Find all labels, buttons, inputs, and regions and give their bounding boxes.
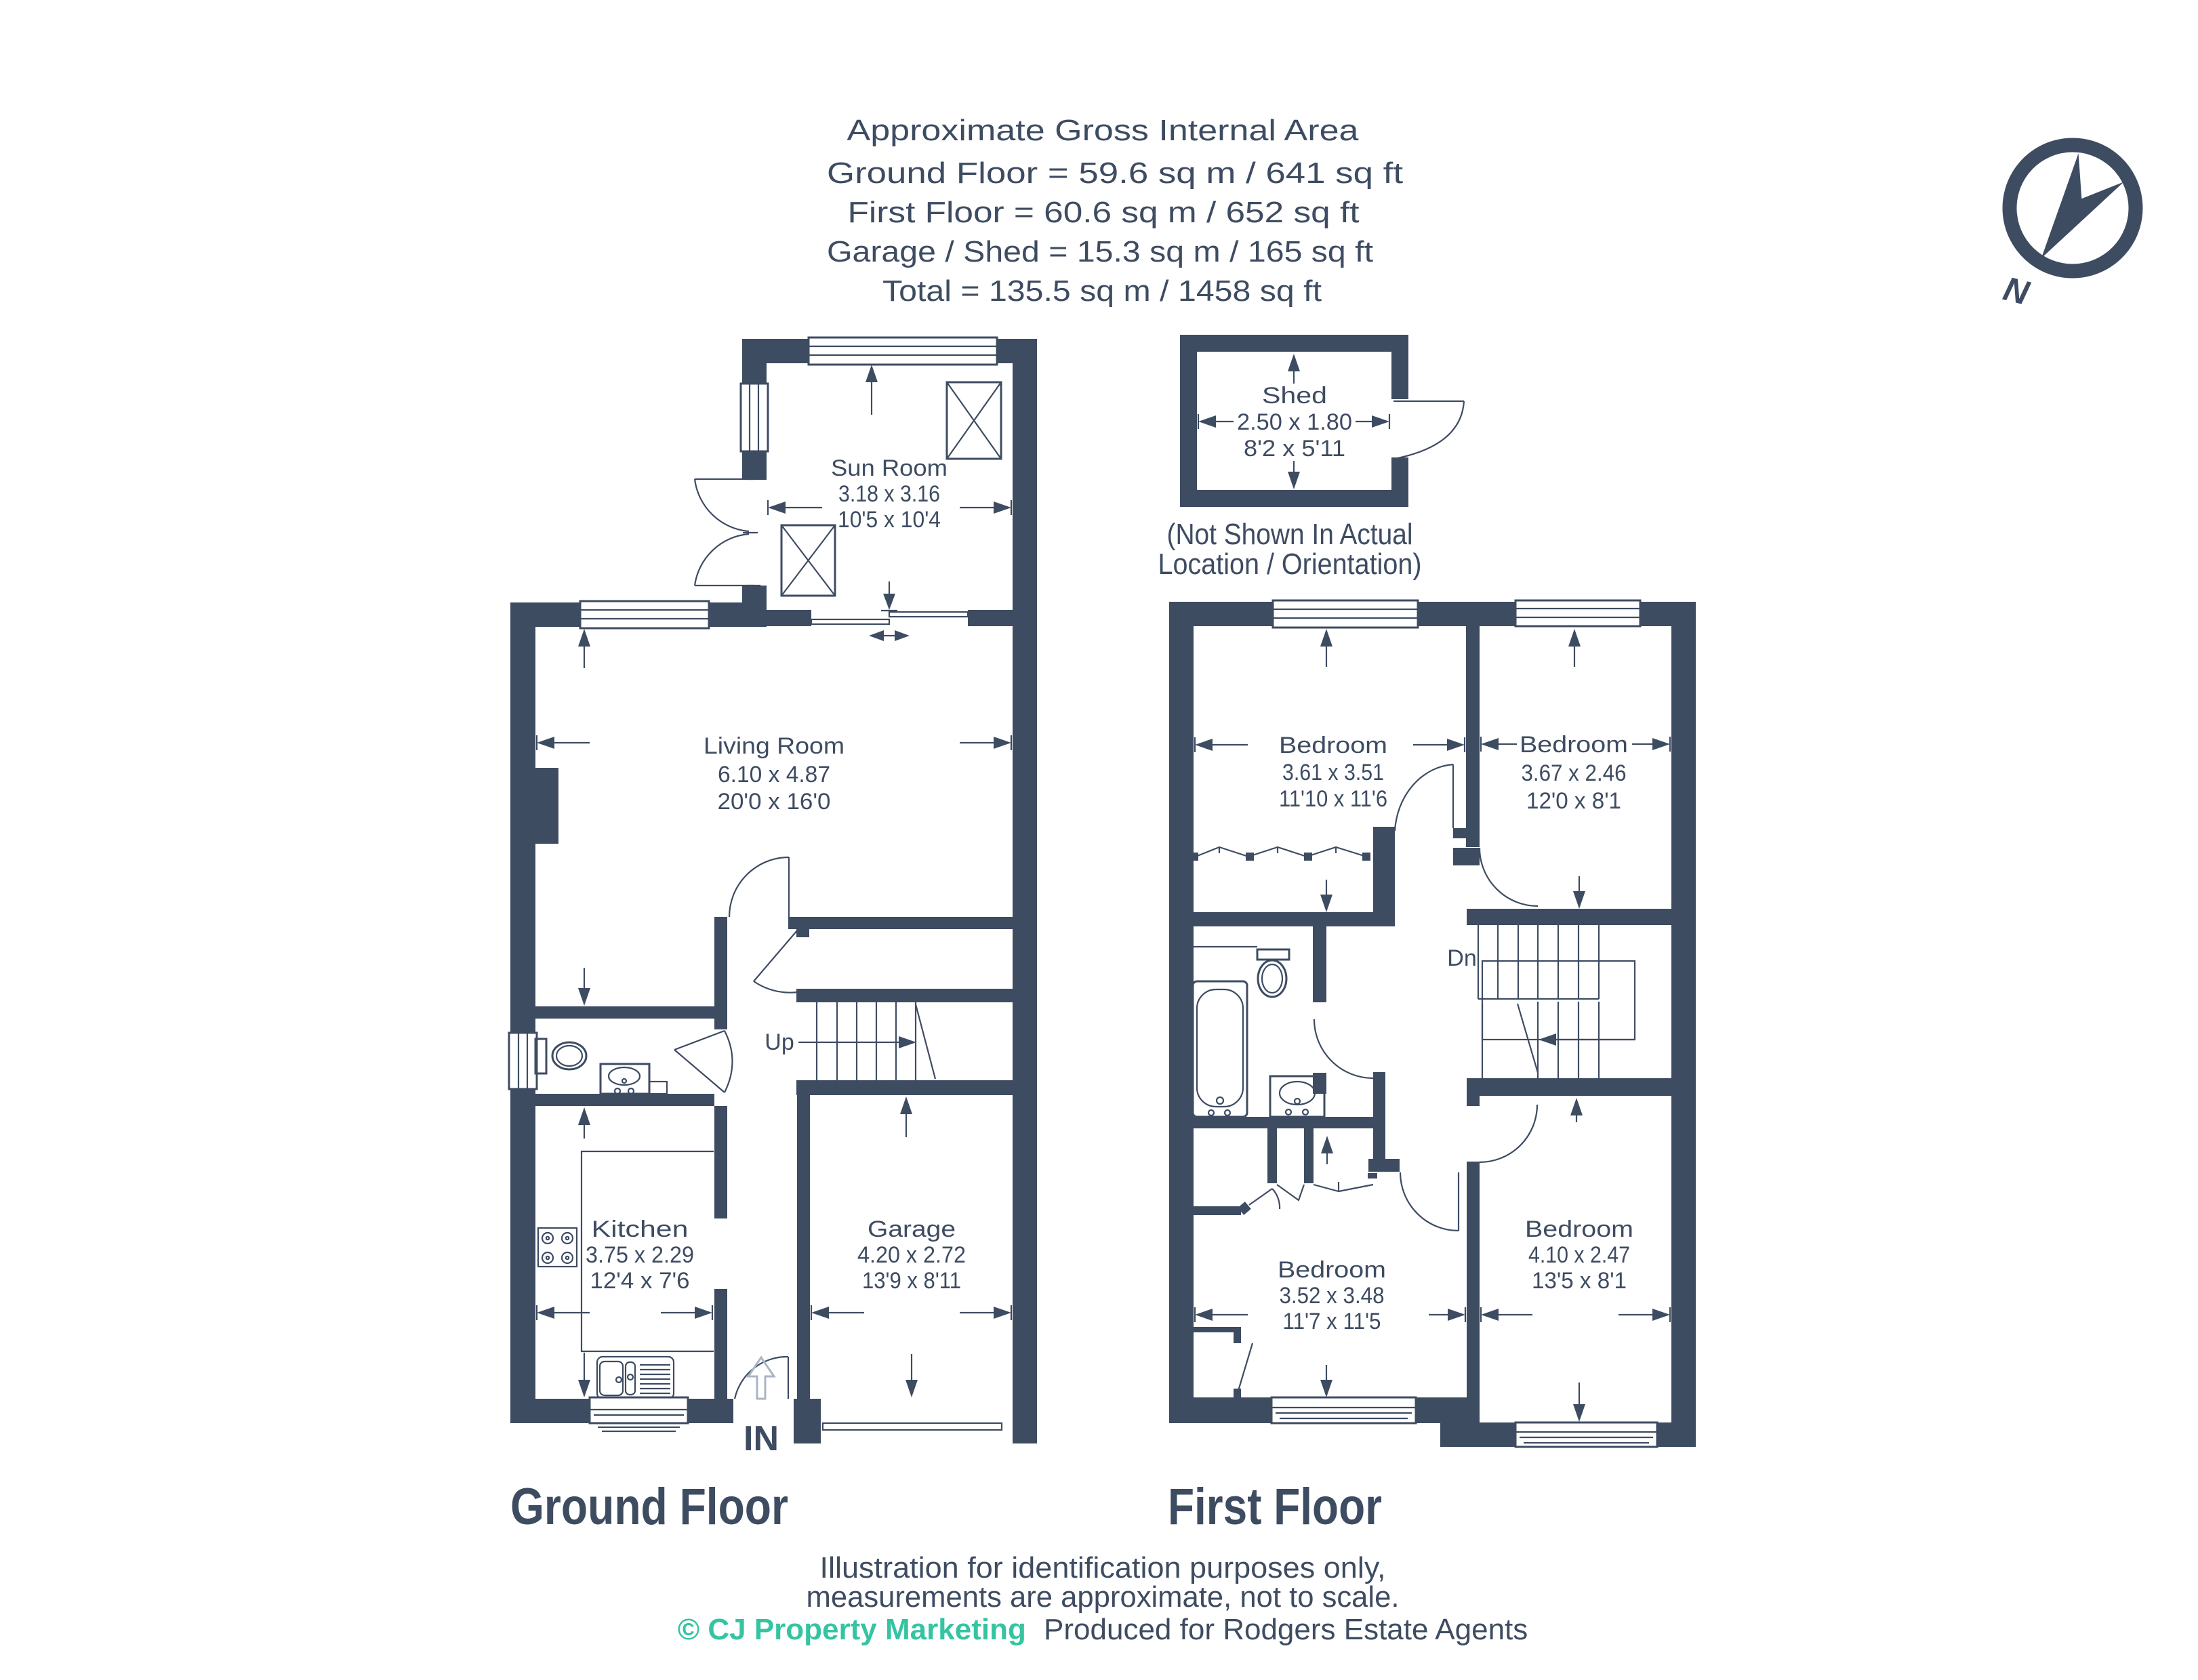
svg-text:3.61 x 3.51: 3.61 x 3.51 bbox=[1282, 760, 1384, 785]
svg-text:Ground Floor = 59.6 sq m / 641: Ground Floor = 59.6 sq m / 641 sq ft bbox=[827, 157, 1403, 190]
svg-text:© CJ Property Marketing Produc: © CJ Property Marketing Produced for Rod… bbox=[678, 1613, 1528, 1646]
svg-text:IN: IN bbox=[744, 1419, 779, 1458]
svg-text:11'10 x 11'6: 11'10 x 11'6 bbox=[1279, 786, 1387, 812]
svg-text:measurements are approximate,: measurements are approximate, not to sca… bbox=[807, 1580, 1400, 1614]
svg-text:Bedroom: Bedroom bbox=[1279, 733, 1387, 758]
svg-text:Sun Room: Sun Room bbox=[831, 455, 948, 481]
svg-text:Kitchen: Kitchen bbox=[592, 1216, 689, 1242]
svg-text:12'4 x 7'6: 12'4 x 7'6 bbox=[590, 1268, 690, 1294]
svg-text:3.67 x 2.46: 3.67 x 2.46 bbox=[1522, 760, 1627, 786]
svg-text:13'9 x 8'11: 13'9 x 8'11 bbox=[862, 1268, 961, 1294]
svg-text:Dn: Dn bbox=[1447, 945, 1476, 971]
svg-text:8'2 x 5'11: 8'2 x 5'11 bbox=[1244, 436, 1345, 462]
svg-text:Location / Orientation): Location / Orientation) bbox=[1158, 548, 1422, 581]
svg-text:(Not Shown In Actual: (Not Shown In Actual bbox=[1167, 518, 1413, 551]
svg-text:12'0 x 8'1: 12'0 x 8'1 bbox=[1526, 788, 1621, 814]
svg-text:Living Room: Living Room bbox=[704, 733, 844, 759]
svg-text:Illustration for identificatio: Illustration for identification purposes… bbox=[820, 1551, 1386, 1584]
svg-text:Bedroom: Bedroom bbox=[1525, 1216, 1633, 1242]
svg-text:Bedroom: Bedroom bbox=[1278, 1257, 1386, 1283]
svg-text:3.52 x 3.48: 3.52 x 3.48 bbox=[1280, 1283, 1385, 1309]
svg-text:Bedroom: Bedroom bbox=[1520, 732, 1628, 758]
svg-text:Shed: Shed bbox=[1262, 383, 1327, 409]
svg-text:Up: Up bbox=[765, 1029, 794, 1055]
svg-text:11'7 x 11'5: 11'7 x 11'5 bbox=[1283, 1309, 1381, 1334]
svg-text:6.10 x 4.87: 6.10 x 4.87 bbox=[718, 762, 830, 787]
svg-text:Approximate Gross Internal Are: Approximate Gross Internal Area bbox=[847, 114, 1360, 147]
svg-text:13'5 x 8'1: 13'5 x 8'1 bbox=[1532, 1268, 1627, 1294]
svg-text:4.10 x 2.47: 4.10 x 2.47 bbox=[1528, 1242, 1630, 1268]
svg-text:First Floor = 60.6 sq m / 652: First Floor = 60.6 sq m / 652 sq ft bbox=[848, 196, 1360, 229]
svg-text:20'0 x 16'0: 20'0 x 16'0 bbox=[718, 789, 831, 815]
svg-text:4.20 x 2.72: 4.20 x 2.72 bbox=[857, 1242, 966, 1268]
svg-text:Total = 135.5 sq m / 1458 sq f: Total = 135.5 sq m / 1458 sq ft bbox=[882, 274, 1322, 308]
svg-text:3.75 x 2.29: 3.75 x 2.29 bbox=[586, 1242, 694, 1268]
svg-text:First Floor: First Floor bbox=[1168, 1478, 1382, 1536]
svg-text:2.50 x 1.80: 2.50 x 1.80 bbox=[1237, 409, 1352, 435]
svg-text:Ground Floor: Ground Floor bbox=[510, 1478, 788, 1536]
svg-text:3.18 x 3.16: 3.18 x 3.16 bbox=[838, 481, 940, 507]
svg-text:Garage: Garage bbox=[868, 1216, 956, 1242]
svg-text:10'5 x 10'4: 10'5 x 10'4 bbox=[838, 507, 941, 533]
svg-text:Garage / Shed = 15.3 sq m / 16: Garage / Shed = 15.3 sq m / 165 sq ft bbox=[827, 235, 1373, 268]
